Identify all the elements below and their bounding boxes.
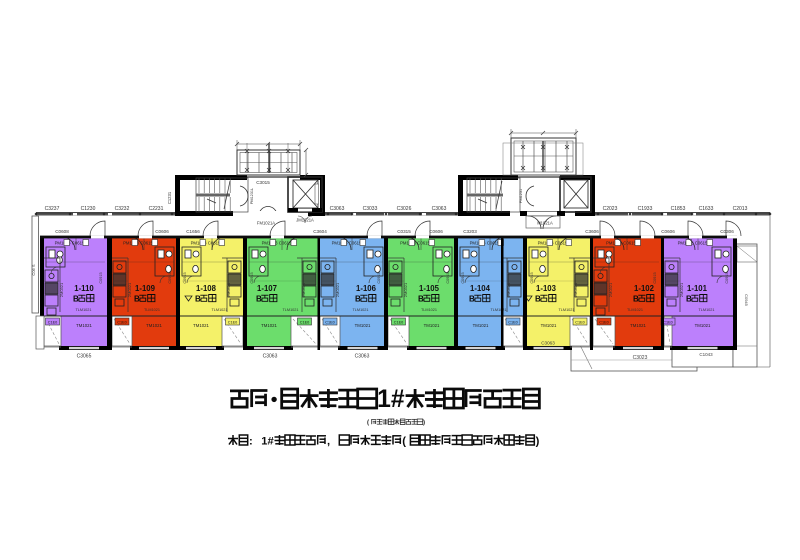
svg-text:C06 S: C06 S bbox=[31, 264, 36, 275]
svg-text:C1656: C1656 bbox=[186, 229, 200, 234]
svg-text:B: B bbox=[535, 294, 541, 303]
svg-text:1-110: 1-110 bbox=[74, 284, 94, 293]
svg-text:C0915: C0915 bbox=[168, 272, 172, 283]
svg-text:C1E0: C1E0 bbox=[599, 321, 609, 325]
svg-text:): ) bbox=[536, 436, 540, 448]
svg-text:TLM1021: TLM1021 bbox=[282, 308, 298, 312]
svg-text:C3063: C3063 bbox=[355, 354, 370, 360]
svg-text:C3604: C3604 bbox=[313, 229, 327, 234]
svg-text:C0915: C0915 bbox=[250, 272, 254, 283]
svg-text:2M0321: 2M0321 bbox=[59, 282, 64, 297]
svg-text:1-102: 1-102 bbox=[634, 284, 655, 293]
svg-text:C1633: C1633 bbox=[699, 206, 714, 212]
svg-text:TLM1021: TLM1021 bbox=[490, 308, 506, 312]
svg-text:C3237: C3237 bbox=[45, 206, 60, 212]
svg-text:C2023: C2023 bbox=[603, 206, 618, 212]
svg-text:C1E0: C1E0 bbox=[117, 321, 127, 325]
svg-text:B: B bbox=[686, 294, 692, 303]
svg-text:2M0321: 2M0321 bbox=[226, 282, 231, 297]
svg-text:C0915: C0915 bbox=[446, 272, 450, 283]
svg-text:C3606: C3606 bbox=[585, 229, 599, 234]
svg-text:TM1021: TM1021 bbox=[424, 323, 440, 328]
svg-text:1#: 1# bbox=[377, 386, 405, 413]
svg-text:C2231: C2231 bbox=[149, 206, 164, 212]
svg-text:TLM1021: TLM1021 bbox=[627, 308, 643, 312]
svg-text:1-109: 1-109 bbox=[135, 284, 156, 293]
svg-text:1#: 1# bbox=[261, 436, 274, 448]
svg-text:PM1023 C0615: PM1023 C0615 bbox=[606, 241, 636, 246]
svg-text:B: B bbox=[256, 294, 262, 303]
svg-text:,: , bbox=[327, 436, 330, 448]
svg-text:C1231: C1231 bbox=[167, 191, 172, 204]
svg-text:C0915: C0915 bbox=[725, 272, 729, 283]
svg-text:C0606: C0606 bbox=[155, 229, 169, 234]
svg-text:C3063: C3063 bbox=[432, 206, 447, 212]
svg-text:1-106: 1-106 bbox=[356, 284, 377, 293]
svg-text:(: ( bbox=[402, 436, 406, 448]
svg-text:C0915: C0915 bbox=[653, 272, 657, 283]
svg-text:1-108: 1-108 bbox=[196, 284, 217, 293]
svg-text:B: B bbox=[195, 294, 201, 303]
svg-text:2M0321: 2M0321 bbox=[335, 282, 340, 297]
svg-text:TM1021: TM1021 bbox=[541, 323, 557, 328]
svg-text:C3063: C3063 bbox=[541, 341, 555, 346]
svg-text:B: B bbox=[73, 294, 79, 303]
svg-text:1-101: 1-101 bbox=[687, 284, 708, 293]
svg-text:C0315: C0315 bbox=[397, 229, 411, 234]
svg-text:TM1021: TM1021 bbox=[76, 323, 92, 328]
svg-text:C0606: C0606 bbox=[661, 229, 675, 234]
svg-text:2M0321: 2M0321 bbox=[573, 282, 578, 297]
svg-text:C3015: C3015 bbox=[256, 180, 270, 185]
svg-text:C1E0: C1E0 bbox=[48, 321, 58, 325]
svg-text:C2013: C2013 bbox=[733, 206, 748, 212]
svg-text:C3203: C3203 bbox=[463, 229, 477, 234]
svg-text:C1933: C1933 bbox=[638, 206, 653, 212]
svg-text:C1E0: C1E0 bbox=[394, 321, 404, 325]
svg-text:1-103: 1-103 bbox=[536, 284, 557, 293]
svg-text:B: B bbox=[418, 294, 424, 303]
svg-text:2M0321: 2M0321 bbox=[403, 282, 408, 297]
svg-text:C1E0: C1E0 bbox=[575, 321, 585, 325]
svg-text:FM1021A: FM1021A bbox=[257, 221, 275, 226]
svg-text:C3023: C3023 bbox=[633, 355, 648, 361]
svg-text:2M0321: 2M0321 bbox=[679, 282, 684, 297]
svg-text:C0915: C0915 bbox=[99, 272, 103, 283]
svg-text:C0945: C0945 bbox=[744, 294, 749, 307]
svg-text:TLM1021: TLM1021 bbox=[352, 308, 368, 312]
svg-text:PM1231L: PM1231L bbox=[250, 188, 254, 204]
svg-text:C0608: C0608 bbox=[55, 229, 69, 234]
svg-text:): ) bbox=[423, 419, 425, 426]
svg-text:TLM1021: TLM1021 bbox=[558, 308, 574, 312]
svg-text:B: B bbox=[633, 294, 639, 303]
svg-text:C3063: C3063 bbox=[263, 354, 278, 360]
svg-text:M1021A: M1021A bbox=[537, 221, 553, 226]
svg-text:TLM1021: TLM1021 bbox=[144, 308, 160, 312]
svg-text:2M0321: 2M0321 bbox=[506, 282, 511, 297]
svg-text:1-107: 1-107 bbox=[257, 284, 277, 293]
svg-text:TM1021: TM1021 bbox=[355, 323, 371, 328]
svg-text:TM1021: TM1021 bbox=[261, 323, 277, 328]
svg-text:TLM1021: TLM1021 bbox=[698, 308, 714, 312]
svg-text:C3232: C3232 bbox=[115, 206, 130, 212]
svg-text:TLM1021: TLM1021 bbox=[421, 308, 437, 312]
svg-text:C1230: C1230 bbox=[81, 206, 96, 212]
svg-text:2M0321: 2M0321 bbox=[127, 282, 132, 297]
svg-text:C1E0: C1E0 bbox=[663, 321, 673, 325]
svg-text:C0915: C0915 bbox=[461, 272, 465, 283]
svg-text:C0915: C0915 bbox=[377, 272, 381, 283]
svg-text:B: B bbox=[469, 294, 475, 303]
svg-text:B: B bbox=[355, 294, 361, 303]
svg-text:TM1021: TM1021 bbox=[146, 323, 162, 328]
svg-text:C1E0: C1E0 bbox=[325, 321, 335, 325]
svg-text:C0915: C0915 bbox=[530, 272, 534, 283]
svg-text:TLM1021: TLM1021 bbox=[75, 308, 91, 312]
svg-text:C0915: C0915 bbox=[183, 272, 187, 283]
svg-text:TM1021: TM1021 bbox=[193, 323, 209, 328]
svg-text:C1E0: C1E0 bbox=[508, 321, 518, 325]
svg-text:C1E0: C1E0 bbox=[300, 321, 310, 325]
svg-text:C0306: C0306 bbox=[720, 229, 734, 234]
svg-text:PM1231: PM1231 bbox=[519, 189, 523, 203]
svg-text:C1043: C1043 bbox=[699, 352, 713, 357]
svg-text:1-105: 1-105 bbox=[419, 284, 440, 293]
svg-text:2M0321: 2M0321 bbox=[608, 282, 613, 297]
svg-text:PM1023 C0615: PM1023 C0615 bbox=[262, 241, 292, 246]
svg-text:1-104: 1-104 bbox=[470, 284, 491, 293]
svg-text:TLM1021: TLM1021 bbox=[211, 308, 227, 312]
svg-text:TM1021: TM1021 bbox=[630, 323, 646, 328]
svg-text:C3033: C3033 bbox=[363, 206, 378, 212]
svg-text:C0606: C0606 bbox=[429, 229, 443, 234]
svg-text:PM1023 C0615: PM1023 C0615 bbox=[123, 241, 153, 246]
svg-text:B: B bbox=[134, 294, 140, 303]
svg-text:C1853: C1853 bbox=[671, 206, 686, 212]
svg-text:C3063: C3063 bbox=[330, 206, 345, 212]
svg-text:TM1021: TM1021 bbox=[473, 323, 489, 328]
svg-text::: : bbox=[249, 436, 253, 448]
svg-text:TM1021: TM1021 bbox=[695, 323, 711, 328]
svg-text:2M0321: 2M0321 bbox=[301, 282, 306, 297]
svg-text:C3065: C3065 bbox=[77, 354, 92, 360]
svg-text:C1E0: C1E0 bbox=[228, 321, 238, 325]
svg-text:C3026: C3026 bbox=[397, 206, 412, 212]
